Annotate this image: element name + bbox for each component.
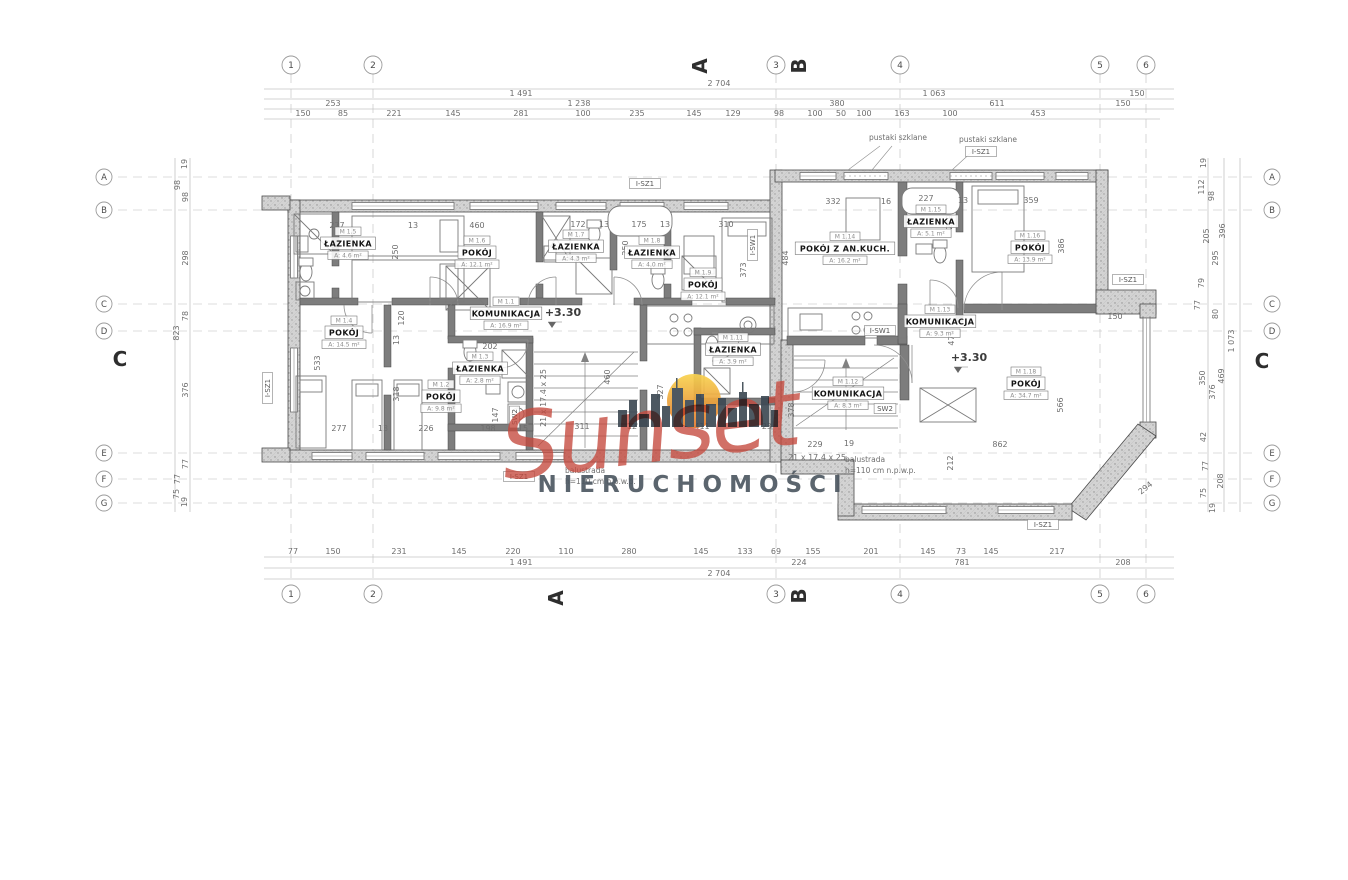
grid-bubble-label: A (1269, 173, 1275, 183)
dimension-text: 13 (378, 424, 388, 433)
grid-bubble-label: C (101, 300, 107, 310)
dimension-text: 212 (946, 455, 955, 470)
dimension-text: 376 (181, 382, 190, 397)
dimension-text: 150 (1107, 312, 1122, 321)
dimension-text: 13 (958, 196, 968, 205)
dimension-text: 386 (1057, 238, 1066, 253)
section-marker: C (113, 347, 128, 371)
dimension-text: 202 (482, 342, 497, 351)
dimension-text: 69 (771, 547, 781, 556)
dimension-text: 16 (881, 197, 891, 206)
dimension-text: 19 (1208, 503, 1217, 513)
floorplan-document: 112233445566AABBCCDDEEFFGG (0, 0, 1348, 880)
dimension-text: 298 (181, 250, 190, 265)
room-name: ŁAZIENKA (708, 346, 757, 355)
annotation-text: I-SW1 (870, 327, 890, 335)
room-name: POKÓJ (688, 279, 718, 290)
dimension-text: 205 (1202, 228, 1211, 243)
room-label: M 1.16POKÓJA: 13.9 m² (1008, 231, 1052, 264)
grid-bubble-label: 4 (897, 590, 903, 600)
dimension-text: 98 (173, 180, 182, 190)
section-marker: B (787, 58, 811, 73)
room-area: A: 9.3 m² (926, 331, 954, 338)
room-area: A: 4.0 m² (638, 262, 666, 269)
dimension-text: 208 (1115, 558, 1130, 567)
dimension-text: 120 (397, 310, 406, 325)
section-marker: A (544, 590, 568, 606)
room-name: POKÓJ (1015, 242, 1045, 253)
room-area: A: 8.3 m² (834, 403, 862, 410)
room-label: M 1.9POKÓJA: 12.1 m² (681, 268, 725, 301)
dimension-text: 75 (1199, 488, 1208, 498)
section-marker: A (688, 58, 712, 74)
room-name: ŁAZIENKA (627, 249, 676, 258)
grid-bubble-label: 3 (773, 61, 779, 71)
dimension-text: 172 (570, 220, 585, 229)
dimension-text: 198 (480, 424, 495, 433)
room-id: M 1.7 (568, 232, 585, 239)
room-id: M 1.14 (835, 234, 856, 241)
annotation-text: pustaki szklane (959, 135, 1017, 144)
section-markers-layer: ABABCC (113, 58, 1270, 606)
dimension-text: 453 (1030, 109, 1045, 118)
dimension-text: 229 (807, 440, 822, 449)
annotation: I-SZ1 (263, 373, 273, 404)
grid-bubble-label: C (1269, 300, 1275, 310)
dimension-text: 350 (1198, 370, 1207, 385)
dimension-text: 281 (513, 109, 528, 118)
dimension-text: 13 (599, 220, 609, 229)
room-name: POKÓJ (426, 391, 456, 402)
dimension-text: 221 (386, 109, 401, 118)
grid-bubble-label: F (1270, 475, 1275, 485)
dimension-text: 77 (1201, 461, 1210, 471)
room-id: M 1.16 (1020, 233, 1041, 240)
room-area: A: 12.1 m² (687, 294, 719, 301)
room-name: ŁAZIENKA (323, 240, 372, 249)
dimension-text: 73 (956, 547, 966, 556)
dimension-text: 781 (954, 558, 969, 567)
grid-bubble-label: G (101, 499, 108, 509)
annotation-text: I-SW1 (749, 235, 757, 255)
dimension-text: 98 (1207, 191, 1216, 201)
dimension-text: 145 (693, 547, 708, 556)
grid-bubble-label: B (101, 206, 107, 216)
room-area: A: 34.7 m² (1010, 393, 1042, 400)
room-name: POKÓJ (462, 247, 492, 258)
dimension-text: 145 (983, 547, 998, 556)
dimension-text: 145 (445, 109, 460, 118)
grid-bubble-label: E (101, 449, 106, 459)
annotation: I-SW1 (748, 230, 758, 261)
dimension-text: 220 (505, 547, 520, 556)
dimension-text: 19 (1199, 158, 1208, 168)
grid-bubble-label: 2 (370, 590, 376, 600)
dimension-text: 78 (181, 311, 190, 321)
section-marker: C (1255, 349, 1270, 373)
grid-bubble-label: D (1269, 327, 1276, 337)
dimension-text: 332 (825, 197, 840, 206)
dimension-text: 13 (408, 221, 418, 230)
room-area: A: 16.2 m² (829, 258, 861, 265)
room-id: M 1.8 (644, 238, 661, 245)
room-id: M 1.2 (433, 382, 450, 389)
annotation: I-SZ1 (1113, 275, 1144, 285)
dimension-text: 98 (774, 109, 784, 118)
dimension-text: 253 (325, 99, 340, 108)
dimension-text: 862 (992, 440, 1007, 449)
dimension-text: 231 (391, 547, 406, 556)
dimension-text: 100 (856, 109, 871, 118)
room-area: A: 4.3 m² (562, 256, 590, 263)
dimension-text: 310 (718, 220, 733, 229)
room-name: POKÓJ (329, 327, 359, 338)
room-area: A: 14.5 m² (328, 342, 360, 349)
annotation-text: +3.30 (951, 351, 988, 364)
dimension-text: 150 (325, 547, 340, 556)
dimension-text: 110 (558, 547, 573, 556)
dimension-text: 359 (1023, 196, 1038, 205)
dimension-text: 1 073 (1227, 330, 1236, 353)
dimension-text: 19 (844, 439, 854, 448)
dimension-text: 380 (829, 99, 844, 108)
room-id: M 1.12 (838, 379, 859, 386)
room-id: M 1.15 (921, 207, 942, 214)
room-id: M 1.3 (472, 354, 489, 361)
dimension-text: 163 (894, 109, 909, 118)
dimension-text: 13 (660, 220, 670, 229)
dimension-text: 294 (1137, 480, 1155, 497)
dimension-text: 155 (805, 547, 820, 556)
dimension-text: 823 (172, 325, 181, 340)
room-id: M 1.18 (1016, 369, 1037, 376)
grid-bubble-label: D (101, 327, 108, 337)
grid-bubble-label: 1 (288, 590, 294, 600)
grid-bubble-label: E (1269, 449, 1274, 459)
dimension-text: 100 (807, 109, 822, 118)
room-area: A: 2.8 m² (466, 378, 494, 385)
dimension-text: 227 (918, 194, 933, 203)
grid-bubble-label: 2 (370, 61, 376, 71)
grid-bubble-label: 5 (1097, 61, 1103, 71)
dimension-text: 280 (621, 547, 636, 556)
dimension-text: 2 704 (708, 569, 731, 578)
grid-bubble-label: 4 (897, 61, 903, 71)
dimension-text: 13 (392, 335, 401, 345)
room-name: KOMUNIKACJA (906, 318, 975, 327)
grid-bubble-label: 3 (773, 590, 779, 600)
dimension-text: 396 (1218, 223, 1227, 238)
dimension-text: 376 (1208, 384, 1217, 399)
dimension-text: 460 (469, 221, 484, 230)
dimension-text: 469 (1217, 368, 1226, 383)
dimension-text: 175 (631, 220, 646, 229)
dimension-text: 1 238 (568, 99, 591, 108)
grid-bubble-label: 1 (288, 61, 294, 71)
room-area: A: 9.8 m² (427, 406, 455, 413)
watermark-subtitle: NIERUCHOMOŚCI (537, 470, 848, 498)
dimension-text: 318 (392, 386, 401, 401)
annotation-text: I-SZ1 (972, 148, 990, 156)
annotation: I-SZ1 (966, 147, 997, 157)
annotation: I-SZ1 (1028, 520, 1059, 530)
structural-grid: 112233445566AABBCCDDEEFFGG (96, 56, 1280, 603)
dimension-text: 201 (863, 547, 878, 556)
dimension-text: 2 704 (708, 79, 731, 88)
dimension-text: 484 (781, 250, 790, 265)
room-label: M 1.18POKÓJA: 34.7 m² (1004, 367, 1048, 400)
room-name: POKÓJ (1011, 378, 1041, 389)
dimension-text: 217 (1049, 547, 1064, 556)
room-name: ŁAZIENKA (551, 243, 600, 252)
annotation-text: h=110 cm n.p.w.p. (845, 466, 916, 475)
room-label: M 1.6POKÓJA: 12.1 m² (455, 236, 499, 269)
annotation: I-SZ1 (630, 179, 661, 189)
dimension-text: 100 (942, 109, 957, 118)
dimension-text: 98 (181, 192, 190, 202)
room-id: M 1.1 (498, 299, 515, 306)
dimension-text: 79 (1197, 278, 1206, 288)
room-area: A: 12.1 m² (461, 262, 493, 269)
room-id: M 1.11 (723, 335, 744, 342)
room-id: M 1.9 (695, 270, 712, 277)
dimension-text: 1 491 (510, 89, 533, 98)
grid-bubble-label: A (101, 173, 107, 183)
dimension-text: 77 (173, 474, 182, 484)
room-label: M 1.3ŁAZIENKAA: 2.8 m² (453, 352, 508, 385)
floor-plan-drawing: 112233445566AABBCCDDEEFFGG (0, 0, 1348, 880)
annotation-text: I-SZ1 (1034, 521, 1052, 529)
dimension-text: 533 (313, 355, 322, 370)
room-id: M 1.6 (469, 238, 486, 245)
annotation-text: pustaki szklane (869, 133, 927, 142)
dimension-text: 112 (1197, 179, 1206, 194)
section-marker: B (787, 588, 811, 603)
dimension-text: 235 (629, 109, 644, 118)
dimension-text: 373 (739, 262, 748, 277)
annotation-text: balustrada (845, 455, 885, 464)
dimension-text: 150 (295, 109, 310, 118)
room-label: M 1.5ŁAZIENKAA: 4.6 m² (321, 227, 376, 260)
dimension-text: 224 (791, 558, 806, 567)
grid-bubble-label: G (1269, 499, 1276, 509)
dimension-text: 611 (989, 99, 1004, 108)
dimension-text: 145 (686, 109, 701, 118)
room-area: A: 5.1 m² (917, 231, 945, 238)
dimension-text: 77 (181, 459, 190, 469)
dimension-text: 129 (725, 109, 740, 118)
dimension-text: 150 (1115, 99, 1130, 108)
dimension-text: 1 491 (510, 558, 533, 567)
dimension-text: 1 063 (923, 89, 946, 98)
annotation-text: I-SZ1 (264, 379, 272, 397)
room-area: A: 16.9 m² (490, 323, 522, 330)
dimension-text: 566 (1056, 397, 1065, 412)
dimension-text: 77 (1193, 300, 1202, 310)
room-id: M 1.5 (340, 229, 357, 236)
room-label: M 1.4POKÓJA: 14.5 m² (322, 316, 366, 349)
dimension-text: 145 (451, 547, 466, 556)
dimension-text: 133 (737, 547, 752, 556)
annotation-text: SW2 (877, 405, 893, 413)
grid-bubble-label: 6 (1143, 590, 1149, 600)
dimension-text: 19 (180, 159, 189, 169)
dimension-text: 150 (1129, 89, 1144, 98)
dimension-text: 42 (1199, 432, 1208, 442)
dimension-text: 295 (1211, 250, 1220, 265)
room-id: M 1.13 (930, 307, 951, 314)
dimension-text: 100 (575, 109, 590, 118)
dimension-text: 250 (391, 244, 400, 259)
dimension-text: 50 (836, 109, 846, 118)
dimension-text: 19 (180, 497, 189, 507)
annotation: SW2 (874, 404, 896, 414)
annotation-text: +3.30 (545, 306, 582, 319)
dimension-text: 80 (1211, 309, 1220, 319)
room-label: M 1.12KOMUNIKACJAA: 8.3 m² (812, 377, 884, 410)
dimension-text: 77 (288, 547, 298, 556)
room-area: A: 4.6 m² (334, 253, 362, 260)
annotation-text: I-SZ1 (636, 180, 654, 188)
grid-bubble-label: B (1269, 206, 1275, 216)
room-name: POKÓJ Z AN.KUCH. (800, 243, 890, 254)
room-area: A: 13.9 m² (1014, 257, 1046, 264)
grid-bubble-label: 5 (1097, 590, 1103, 600)
room-name: ŁAZIENKA (906, 218, 955, 227)
room-id: M 1.4 (336, 318, 353, 325)
dimension-text: 277 (331, 424, 346, 433)
annotation-text: I-SZ1 (1119, 276, 1137, 284)
room-name: ŁAZIENKA (455, 365, 504, 374)
room-name: KOMUNIKACJA (472, 310, 541, 319)
dimension-text: 85 (338, 109, 348, 118)
dimension-text: 208 (1216, 473, 1225, 488)
grid-bubble-label: 6 (1143, 61, 1149, 71)
room-name: KOMUNIKACJA (814, 390, 883, 399)
annotation: I-SW1 (865, 326, 896, 336)
dimension-text: 226 (418, 424, 433, 433)
grid-bubble-label: F (102, 475, 107, 485)
dimension-text: 145 (920, 547, 935, 556)
